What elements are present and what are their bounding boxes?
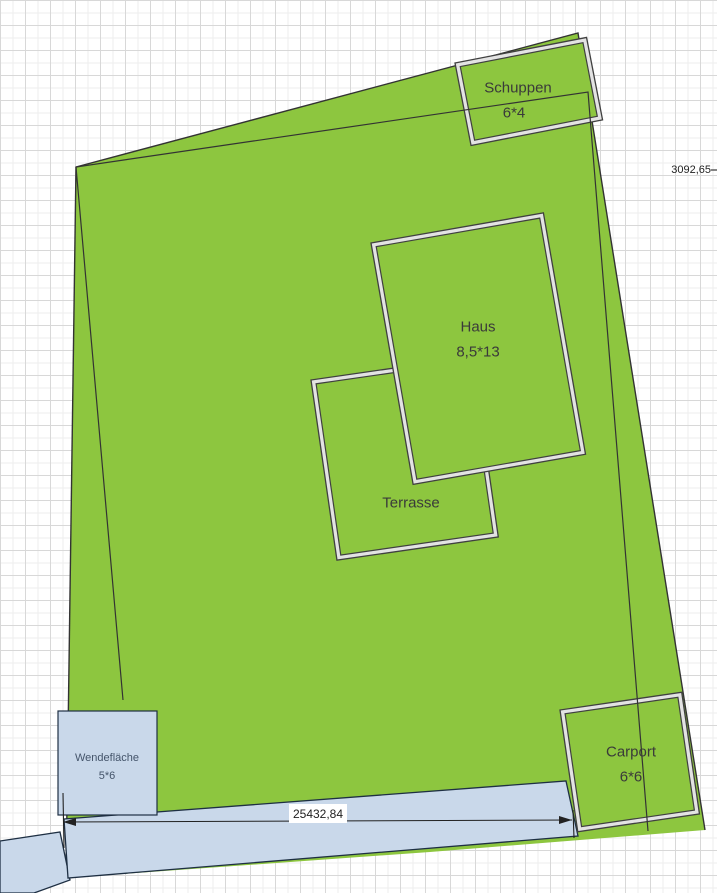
- wendeflaeche-dims-label: 5*6: [99, 770, 116, 782]
- schuppen-label: Schuppen: [484, 80, 552, 97]
- carport-inner-border: [565, 697, 694, 826]
- grid-canvas: 25432,84 3092,65 Schuppen 6*4 Haus 8,5*1…: [0, 0, 717, 893]
- right-dimension-label: 3092,65: [671, 164, 711, 176]
- haus-label: Haus: [460, 319, 495, 336]
- street-left-segment[interactable]: [0, 832, 70, 893]
- carport-shape[interactable]: [560, 692, 699, 831]
- dimension-label: 25432,84: [293, 807, 343, 821]
- right-dimension[interactable]: 3092,65: [671, 164, 717, 176]
- wendeflaeche-label: Wendefläche: [75, 752, 139, 764]
- plan-canvas: 25432,84 3092,65 Schuppen 6*4 Haus 8,5*1…: [0, 0, 717, 893]
- schuppen-dims-label: 6*4: [503, 105, 526, 122]
- haus-dims-label: 8,5*13: [456, 344, 499, 361]
- carport-label: Carport: [606, 744, 657, 761]
- terrasse-label: Terrasse: [382, 495, 440, 512]
- carport-dims-label: 6*6: [620, 769, 643, 786]
